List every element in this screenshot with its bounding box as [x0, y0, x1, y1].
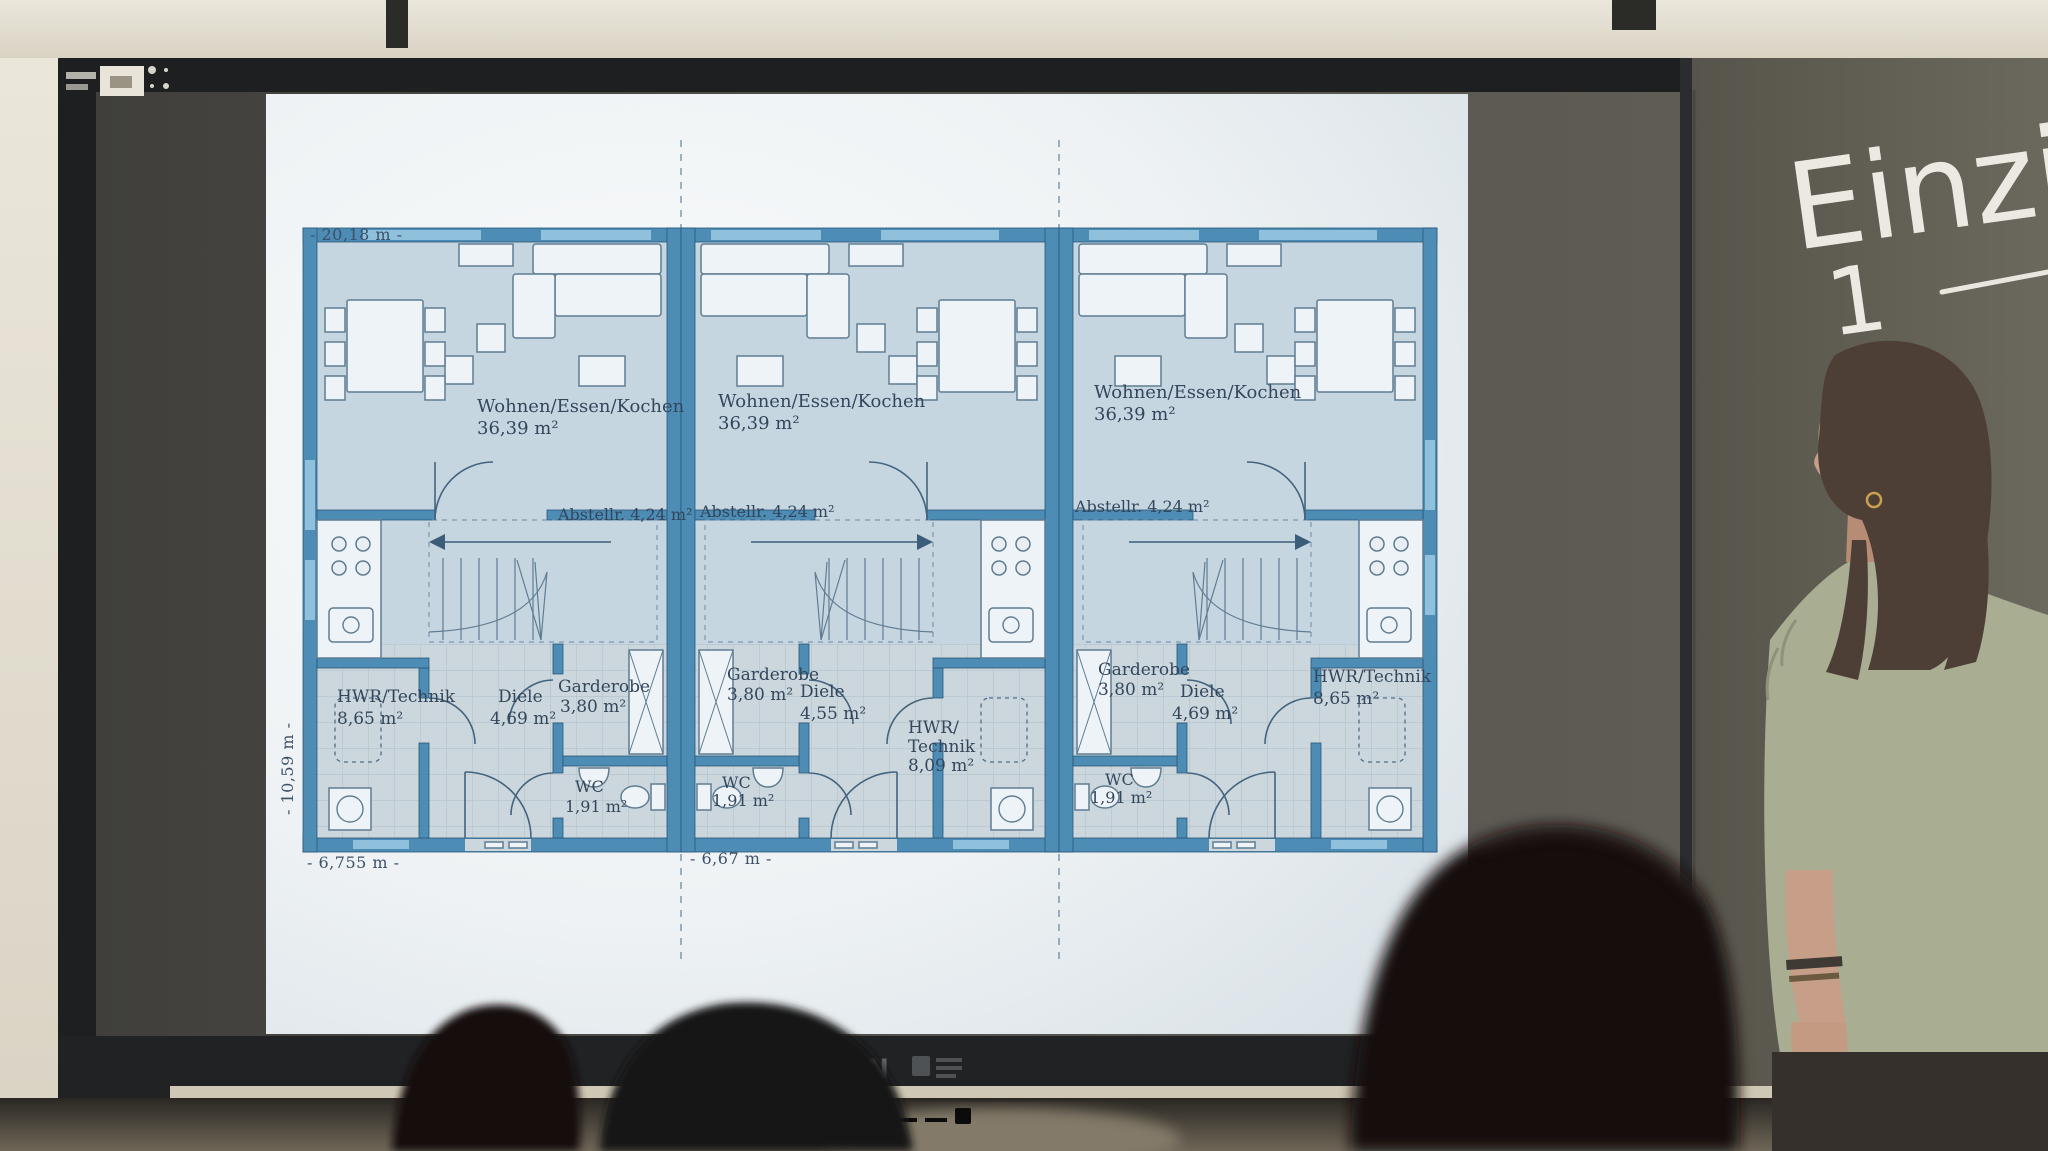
room-label: HWR/Technik — [337, 687, 456, 707]
room-area: 3,80 m² — [560, 697, 626, 717]
room-area: 4,69 m² — [1172, 704, 1238, 724]
room-area: 3,80 m² — [727, 685, 793, 705]
room-label: WC — [722, 773, 751, 792]
floor-plan-unit-middle — [681, 228, 1059, 852]
room-label: Abstellr. 4,24 m² — [1074, 497, 1210, 516]
ceiling-mount-left — [386, 0, 408, 48]
room-label: Wohnen/Essen/Kochen — [477, 396, 685, 417]
dimension-unit-left: - 6,755 m - — [307, 853, 400, 872]
room-label: Diele — [800, 682, 845, 702]
room-label: HWR/ — [908, 718, 959, 738]
room-label: Diele — [1180, 682, 1225, 702]
dimension-unit-middle: - 6,67 m - — [690, 849, 772, 868]
room-label: Wohnen/Essen/Kochen — [1094, 382, 1302, 403]
room-area: 36,39 m² — [718, 413, 800, 434]
room-label: Abstellr. 4,24 m² — [699, 502, 835, 521]
ceiling-mount-right — [1612, 0, 1656, 30]
room-area: 4,69 m² — [490, 709, 556, 729]
floor-plan-unit-right — [1059, 228, 1437, 852]
dimension-total-width: - 20,18 m - — [310, 225, 403, 244]
room-area: 1,91 m² — [565, 797, 627, 816]
room-label: WC — [1105, 770, 1134, 789]
room-area: 8,65 m² — [337, 709, 403, 729]
room-area: 8,65 m² — [1313, 689, 1379, 709]
room-area: 3,80 m² — [1098, 680, 1164, 700]
classroom-wall-left — [0, 58, 58, 1151]
room-label: Garderobe — [558, 677, 650, 697]
room-area: 8,09 m² — [908, 756, 974, 776]
room-label: WC — [575, 777, 604, 796]
room-area: 1,91 m² — [1090, 788, 1152, 807]
hdmi-port — [955, 1108, 971, 1124]
room-area: 36,39 m² — [1094, 404, 1176, 425]
room-label: Technik — [908, 737, 976, 757]
floor-plan-unit-left — [303, 228, 681, 852]
brand-cjk-mark — [912, 1056, 962, 1078]
room-label: HWR/Technik — [1313, 667, 1432, 687]
room-label: Garderobe — [1098, 660, 1190, 680]
classroom-photo: Einzim 1 Wohnen/Essen/Kochen 36,39 m² — [0, 0, 2048, 1151]
room-area: 36,39 m² — [477, 418, 559, 439]
floor-plan — [303, 228, 1437, 852]
room-label: Abstellr. 4,24 m² — [557, 505, 693, 524]
room-area: 4,55 m² — [800, 704, 866, 724]
presenter-skirt — [1772, 1052, 2048, 1151]
room-area: 1,91 m² — [712, 791, 774, 810]
room-label: Diele — [498, 687, 543, 707]
classroom-wall — [0, 0, 2048, 58]
room-label: Wohnen/Essen/Kochen — [718, 391, 926, 412]
dimension-total-depth: - 10,59 m - — [278, 722, 297, 815]
